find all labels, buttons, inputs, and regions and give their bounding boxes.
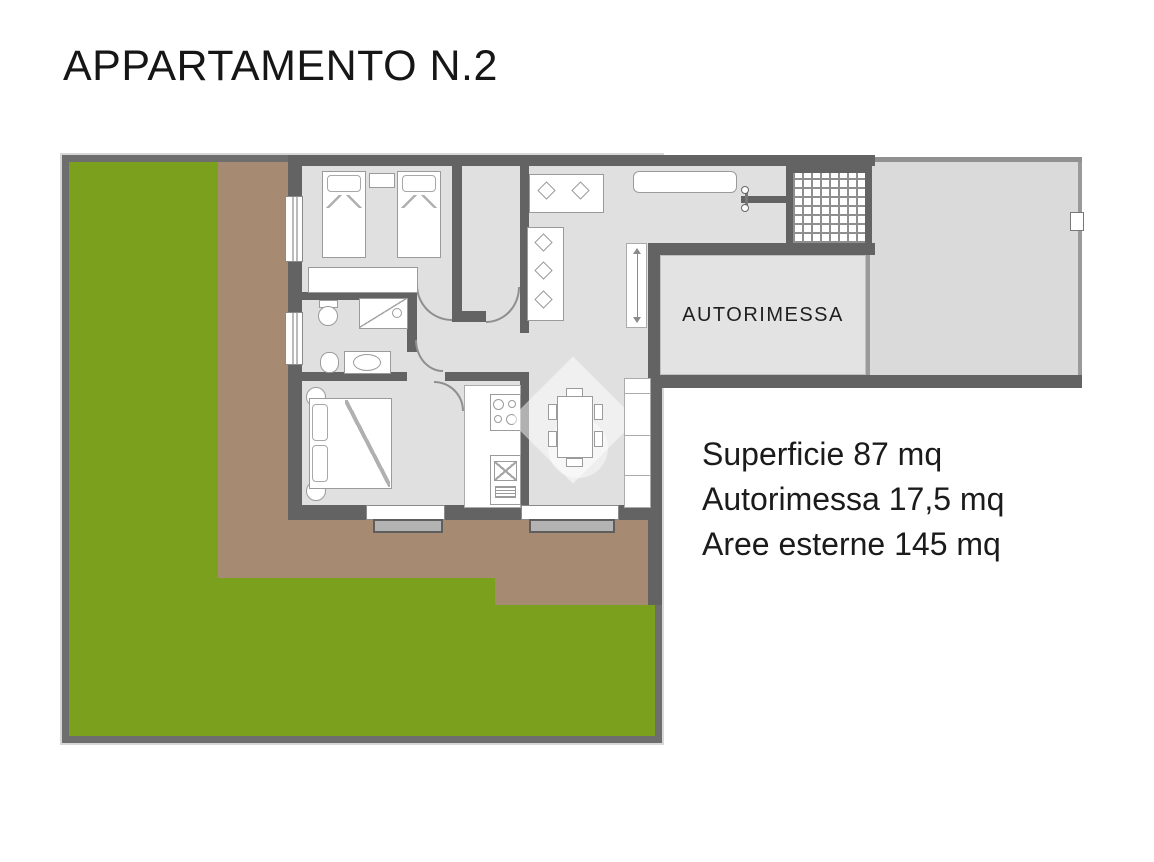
kitchen-sink-drainer: [495, 486, 516, 498]
window-south-dining: [521, 505, 619, 520]
wall-south-1: [288, 505, 368, 520]
wall-north: [288, 155, 875, 166]
double-bed-pillow-2: [312, 445, 328, 482]
entrance-door-handle-knob-top: [741, 186, 749, 194]
driveway-east-edge: [1078, 162, 1082, 378]
wall-bedroom-hall-cap: [452, 311, 486, 322]
window-west-bath: [285, 312, 303, 365]
lawn-area-southeast: [495, 605, 655, 736]
built-in-units-east: [624, 378, 651, 508]
wall-bedroom-hall: [452, 162, 462, 314]
wall-garage-north: [648, 243, 875, 255]
single-bed-1-blanket-fold: [323, 195, 365, 208]
page-title: APPARTAMENTO N.2: [63, 42, 498, 91]
dining-table: [557, 396, 593, 458]
dining-chair-4: [594, 431, 603, 447]
shower-drain: [392, 308, 402, 318]
double-bed-pillow-1: [312, 404, 328, 441]
gate-marker: [1070, 212, 1084, 231]
radiator: [626, 243, 647, 328]
stove-burner-3: [494, 415, 502, 423]
garage-east-line: [866, 255, 870, 375]
dining-chair-1: [548, 404, 557, 420]
garage-room: AUTORIMESSA: [660, 255, 866, 375]
entrance-door-handle-knob-bottom: [741, 204, 749, 212]
wall-kitchen-dining: [520, 372, 529, 508]
stove-burner-1: [493, 399, 504, 410]
window-west-bedroom: [285, 196, 303, 262]
window-south-bedroom: [366, 505, 445, 520]
wall-garage-west: [648, 243, 660, 388]
dresser-twin-bedroom: [308, 267, 418, 293]
lawn-area-south: [218, 578, 495, 736]
bidet: [320, 352, 339, 373]
radiator-line: [637, 249, 638, 322]
driveway-area: [870, 162, 1082, 378]
radiator-arrow-up: [633, 248, 641, 254]
single-bed-2-pillow: [402, 175, 436, 192]
grate-grid: [786, 166, 872, 250]
lawn-area-west: [69, 162, 218, 736]
dining-chair-3: [594, 404, 603, 420]
double-bed-blanket-fold: [345, 400, 390, 487]
single-bed-2-blanket-fold: [398, 195, 440, 208]
built-in-units-divider-2: [624, 435, 651, 436]
sideboard: [633, 171, 737, 193]
built-in-units-divider-1: [624, 393, 651, 394]
window-sill-south-dining: [529, 519, 615, 533]
dining-chair-2: [548, 431, 557, 447]
terrace-west: [218, 162, 295, 578]
floorplan-page: APPARTAMENTO N.2 AUTORIMESSA: [0, 0, 1154, 862]
driveway-north-edge: [875, 157, 1082, 162]
window-sill-south-bedroom: [373, 519, 443, 533]
wall-garage-south: [648, 375, 1082, 388]
entrance-door-leaf: [741, 196, 792, 203]
area-stats: Superficie 87 mq Autorimessa 17,5 mq Are…: [702, 432, 1004, 567]
toilet-bowl: [318, 306, 338, 326]
built-in-units-divider-3: [624, 475, 651, 476]
grate-grid-cells: [793, 173, 865, 243]
stat-aree-esterne: Aree esterne 145 mq: [702, 522, 1004, 567]
garage-label: AUTORIMESSA: [682, 304, 844, 327]
stat-autorimessa: Autorimessa 17,5 mq: [702, 477, 1004, 522]
wall-kitchen-north: [445, 372, 529, 381]
nightstand-twin: [369, 173, 395, 188]
sink-basin: [353, 354, 381, 371]
stat-superficie: Superficie 87 mq: [702, 432, 1004, 477]
stove-burner-2: [508, 400, 516, 408]
radiator-arrow-down: [633, 317, 641, 323]
dining-chair-6: [566, 458, 583, 467]
single-bed-1-pillow: [327, 175, 361, 192]
kitchen-sink-basin: [494, 461, 517, 481]
